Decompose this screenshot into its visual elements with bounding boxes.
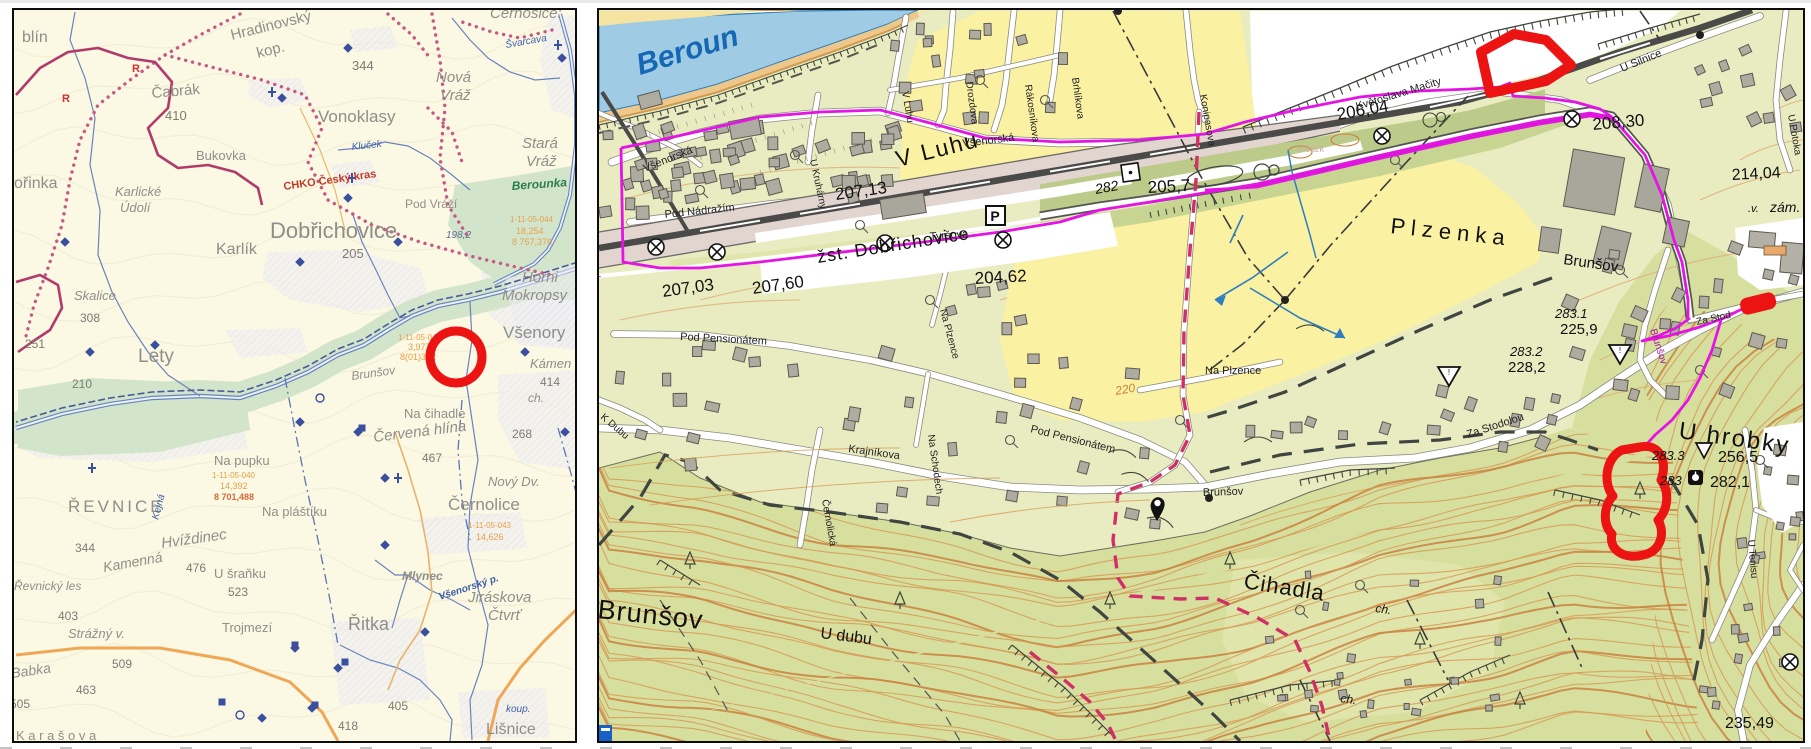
svg-text:283.1: 283.1 — [1554, 306, 1588, 321]
svg-text:509: 509 — [112, 657, 132, 671]
svg-text:214,04: 214,04 — [1731, 164, 1781, 184]
svg-text:14,626: 14,626 — [476, 532, 504, 542]
svg-text:467: 467 — [422, 451, 442, 465]
svg-text:308: 308 — [80, 311, 100, 325]
svg-text:Karlík: Karlík — [216, 241, 258, 258]
svg-text:205: 205 — [342, 246, 364, 261]
svg-text:Nová: Nová — [436, 69, 471, 86]
svg-text:505: 505 — [14, 697, 30, 711]
svg-text:R: R — [62, 93, 70, 105]
svg-text:410: 410 — [165, 108, 187, 123]
svg-text:283: 283 — [1659, 473, 1682, 488]
svg-text:Lišnice: Lišnice — [486, 721, 536, 738]
svg-text:ch.: ch. — [528, 391, 544, 405]
svg-text:1-11-05-044: 1-11-05-044 — [510, 215, 554, 224]
svg-text:Čtvrť: Čtvrť — [488, 607, 522, 624]
svg-text:Skalice: Skalice — [74, 288, 116, 303]
svg-text:R: R — [132, 63, 140, 75]
svg-text:198,2: 198,2 — [446, 230, 471, 241]
svg-text:Mlynec: Mlynec — [402, 569, 443, 583]
svg-text:210: 210 — [72, 377, 92, 391]
svg-text:418: 418 — [338, 719, 358, 733]
svg-text:P: P — [990, 208, 999, 224]
svg-text:344: 344 — [352, 58, 374, 73]
svg-text:205,7: 205,7 — [1147, 176, 1190, 197]
svg-text:Na Plzence: Na Plzence — [1205, 365, 1261, 377]
svg-text:Strážný v.: Strážný v. — [68, 626, 125, 641]
svg-text:1-11-05-040: 1-11-05-040 — [212, 471, 256, 480]
svg-text:8 701,488: 8 701,488 — [214, 492, 254, 502]
svg-text:Kámen: Kámen — [530, 356, 571, 371]
svg-text:K a r a š o v a: K a r a š o v a — [16, 728, 97, 741]
svg-text:ŘEVNICE: ŘEVNICE — [68, 497, 165, 516]
svg-text:Řitka: Řitka — [348, 614, 390, 634]
svg-text:koup.: koup. — [506, 704, 530, 715]
svg-text:268: 268 — [512, 427, 532, 441]
svg-text:Dobřichovice: Dobřichovice — [270, 218, 397, 243]
svg-text:Karlické: Karlické — [115, 184, 161, 199]
svg-text:ch.: ch. — [1340, 691, 1358, 707]
svg-text:Bukovka: Bukovka — [196, 148, 247, 163]
svg-text:ch.: ch. — [1375, 601, 1393, 617]
svg-text:18,254: 18,254 — [516, 226, 544, 236]
svg-text:344: 344 — [75, 541, 95, 555]
svg-text:Brunšov: Brunšov — [1203, 486, 1244, 499]
svg-text:Mokropsy: Mokropsy — [502, 287, 569, 304]
svg-text:283.3: 283.3 — [1651, 448, 1685, 463]
svg-text:Lety: Lety — [138, 346, 174, 367]
svg-text:282,1: 282,1 — [1710, 474, 1750, 491]
svg-text:Všenory: Všenory — [503, 323, 566, 342]
svg-text:zám.: zám. — [1769, 199, 1800, 215]
svg-text:463: 463 — [76, 683, 96, 697]
svg-text:Jiráskova: Jiráskova — [467, 589, 531, 606]
svg-text:Černošice:: Černošice: — [490, 10, 562, 22]
svg-text:Vráž: Vráž — [526, 153, 557, 170]
svg-text:14,392: 14,392 — [220, 481, 248, 491]
svg-text:Údolí: Údolí — [120, 200, 152, 215]
svg-text:!: ! — [1448, 368, 1450, 377]
svg-text:o čúzk: o čúzk — [1298, 144, 1325, 154]
svg-text:Stará: Stará — [522, 135, 558, 152]
svg-text:256,5: 256,5 — [1718, 449, 1758, 466]
svg-text:1-11-05-043: 1-11-05-043 — [468, 521, 512, 530]
svg-text:Řevnický les: Řevnický les — [14, 578, 81, 593]
svg-text:Na pupku: Na pupku — [214, 453, 270, 468]
svg-text:225,9: 225,9 — [1560, 321, 1598, 338]
svg-text:Vráž: Vráž — [440, 87, 471, 104]
svg-text:8 757,376: 8 757,376 — [512, 237, 552, 247]
svg-text:204,62: 204,62 — [974, 266, 1027, 288]
svg-text:251: 251 — [25, 337, 45, 351]
svg-text:Horni: Horni — [522, 269, 559, 286]
svg-text:235,49: 235,49 — [1725, 715, 1774, 732]
svg-text:283.2: 283.2 — [1509, 344, 1543, 359]
svg-text:blín: blín — [22, 29, 48, 46]
svg-text:U šraňku: U šraňku — [214, 566, 266, 581]
svg-text:Na pláštíku: Na pláštíku — [262, 504, 327, 519]
svg-text:476: 476 — [186, 561, 206, 575]
svg-text:523: 523 — [228, 585, 248, 599]
svg-text:405: 405 — [388, 699, 408, 713]
svg-text:Vonoklasy: Vonoklasy — [318, 107, 396, 126]
svg-text:Černolice: Černolice — [448, 495, 520, 514]
svg-text:228,2: 228,2 — [1508, 359, 1546, 376]
svg-text:Trojmezí: Trojmezí — [222, 620, 272, 635]
svg-text:!: ! — [1619, 346, 1621, 355]
svg-text:.v.: .v. — [1748, 203, 1759, 215]
svg-text:Nový Dv.: Nový Dv. — [488, 474, 540, 489]
svg-text:Pod Vráží: Pod Vráží — [405, 197, 458, 211]
svg-text:414: 414 — [540, 375, 560, 389]
svg-text:403: 403 — [58, 609, 78, 623]
svg-text:ořinka: ořinka — [14, 175, 58, 192]
